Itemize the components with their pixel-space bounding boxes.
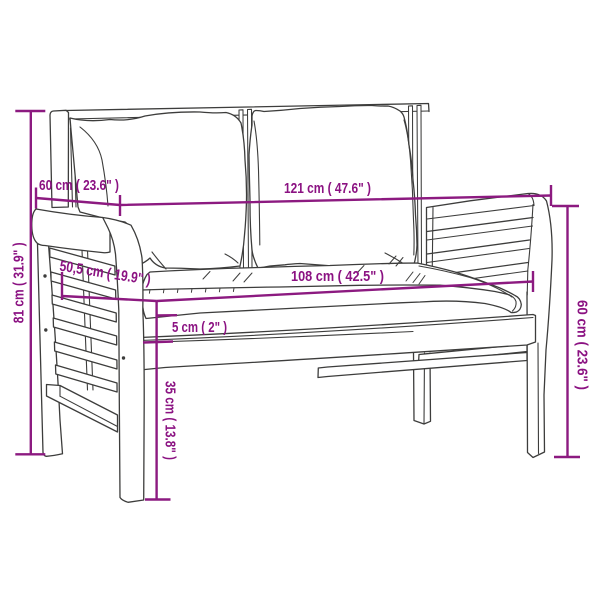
svg-text:35 cm ( 13.8" ): 35 cm ( 13.8" ) — [162, 381, 179, 460]
svg-text:81 cm ( 31.9" ): 81 cm ( 31.9" ) — [11, 242, 28, 323]
svg-text:60 cm ( 23.6" ): 60 cm ( 23.6" ) — [574, 300, 591, 390]
svg-text:121 cm ( 47.6" ): 121 cm ( 47.6" ) — [284, 180, 371, 197]
svg-text:108 cm ( 42.5" ): 108 cm ( 42.5" ) — [291, 268, 384, 285]
svg-text:60 cm ( 23.6" ): 60 cm ( 23.6" ) — [39, 177, 119, 194]
svg-text:5 cm ( 2" ): 5 cm ( 2" ) — [172, 319, 227, 336]
